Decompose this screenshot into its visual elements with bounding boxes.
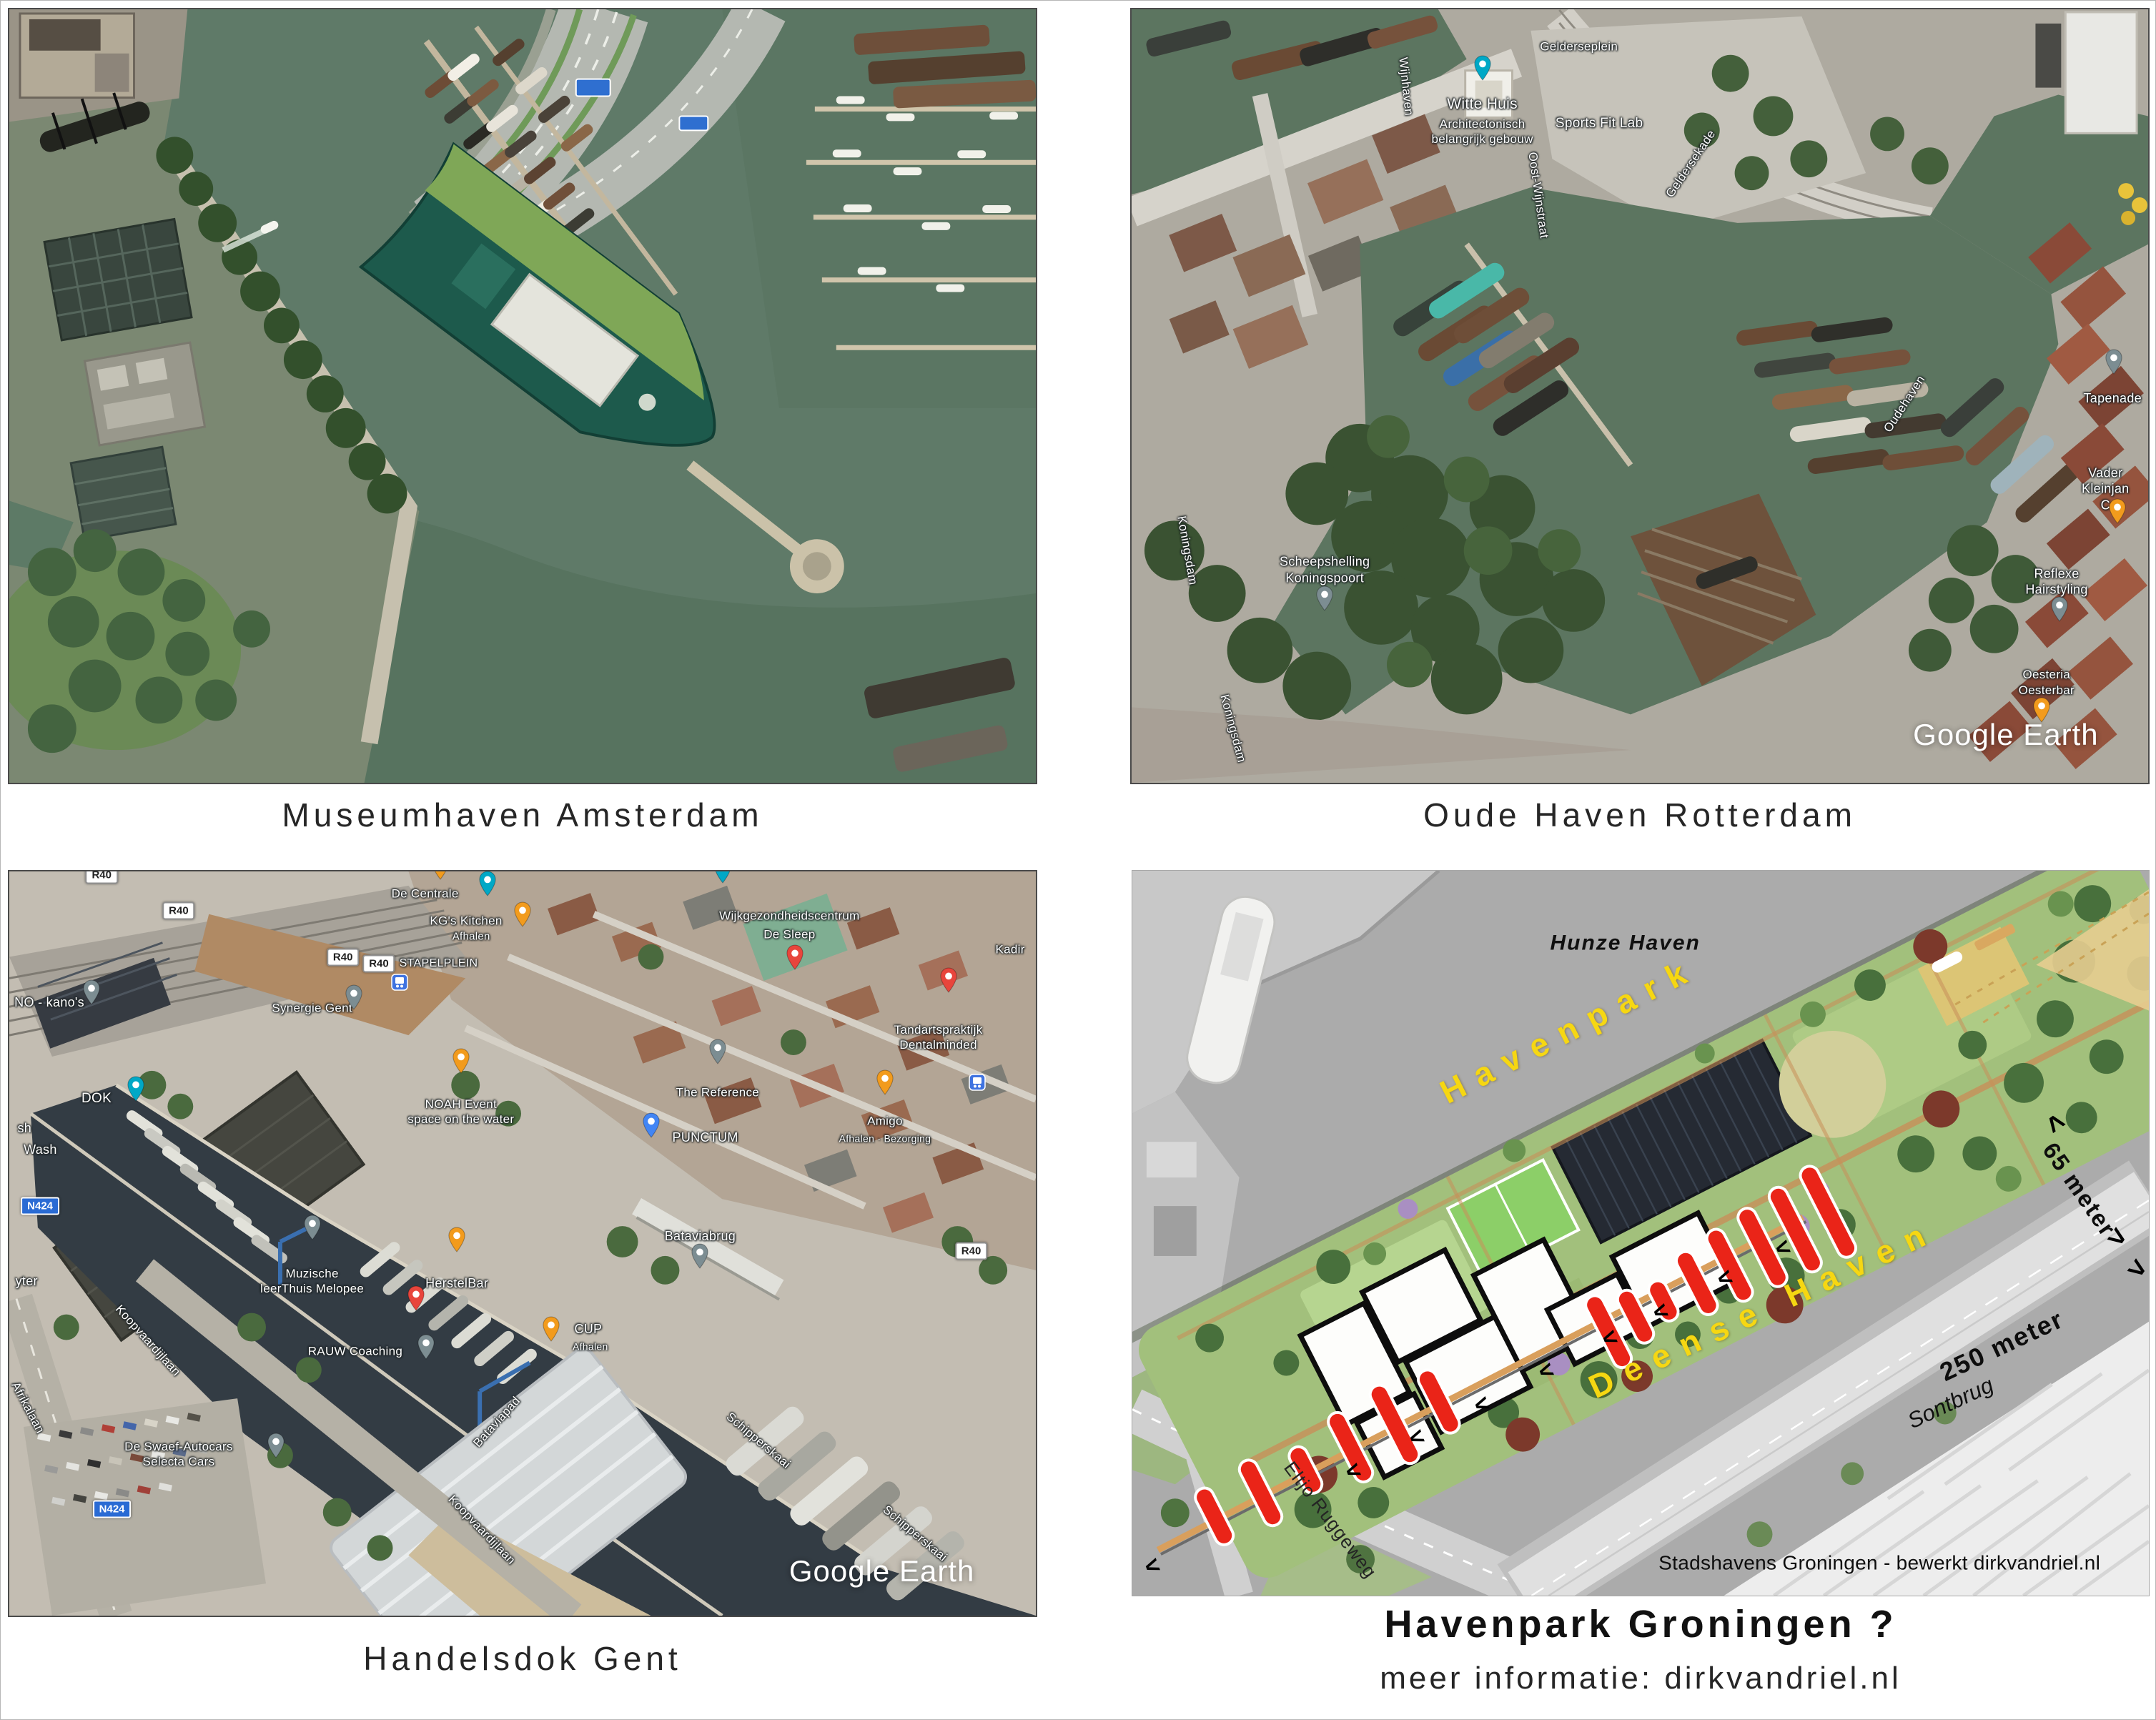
map-label: Kadir xyxy=(996,942,1025,957)
map-label: Deense Haven xyxy=(1582,1210,1943,1408)
caption-oude-haven-rotterdam: Oude Haven Rotterdam xyxy=(1130,796,2150,834)
google-earth-watermark: Google Earth xyxy=(789,1554,975,1588)
road-label: Schipperskaai xyxy=(723,1410,793,1472)
google-earth-watermark: Google Earth xyxy=(1913,718,2099,752)
dot-pin-icon xyxy=(2050,596,2069,622)
medical-pin-icon xyxy=(407,1285,425,1311)
map-label: < xyxy=(1534,1354,1558,1388)
camera-pin-icon xyxy=(1473,55,1492,81)
dot-pin-icon xyxy=(713,870,732,884)
map-label: De Centrale xyxy=(392,886,459,901)
map-label: KG's Kitchen xyxy=(430,913,502,928)
map-label: Wash xyxy=(24,1142,57,1158)
road-label: Geldersekade xyxy=(1663,127,1719,201)
map-label: Witte Huis xyxy=(1447,95,1518,114)
restaurant-pin-icon xyxy=(452,1048,470,1074)
map-label: Afhalen xyxy=(453,930,490,944)
map-label: HerstelBar xyxy=(425,1275,488,1291)
map-label: Eltjo Ruggeweg xyxy=(1279,1456,1382,1582)
map-label: Stadshavens Groningen - bewerkt dirkvand… xyxy=(1658,1551,2100,1576)
map-label: 65 meter xyxy=(2037,1137,2123,1242)
aerial-photo-museumhaven-amsterdam xyxy=(8,8,1037,784)
road-shield-N424: N424 xyxy=(93,1501,132,1518)
map-label: Architectonisch belangrijk gebouw xyxy=(1432,117,1533,147)
dot-pin-icon xyxy=(345,984,363,1010)
map-label: Afhalen · Bezorging xyxy=(839,1132,931,1145)
map-label: NOAH Event space on the water xyxy=(407,1097,514,1127)
map-label: < xyxy=(1341,1454,1365,1488)
map-label: Tapenade xyxy=(2083,390,2141,407)
map-label: Afhalen xyxy=(573,1340,608,1353)
bank-pin-icon xyxy=(127,1076,145,1102)
restaurant-pin-icon xyxy=(876,1069,894,1095)
road-shield-N424: N424 xyxy=(21,1197,59,1215)
book-pin-icon xyxy=(303,1215,322,1240)
road-label: Koningsdam xyxy=(1217,693,1250,764)
restaurant-pin-icon xyxy=(431,870,450,880)
map-label: < xyxy=(1405,1421,1428,1455)
map-label: < xyxy=(1713,1261,1736,1295)
map-label: CUP xyxy=(574,1321,602,1338)
rotterdam-overlay: GeldersepleinWitte HuisArchitectonisch b… xyxy=(1132,9,2148,783)
road-shield-R40: R40 xyxy=(955,1242,988,1260)
road-label: Oudehaven xyxy=(1880,372,1928,435)
map-label: NO - kano's xyxy=(14,994,84,1011)
groningen-overlay: Hunze HavenHavenparkDeense Haven65 meter… xyxy=(1132,871,2149,1596)
road-shield-R40: R40 xyxy=(327,948,360,966)
bridge-pin-icon xyxy=(691,1243,709,1269)
map-label: Scheepshelling Koningspoort xyxy=(1280,554,1370,586)
dot-pin-icon xyxy=(1315,585,1334,611)
coffee-pin-icon xyxy=(542,1316,560,1342)
road-label: Bataviapad xyxy=(470,1393,524,1450)
amsterdam-overlay xyxy=(9,9,1036,783)
medical-pin-icon xyxy=(786,944,804,970)
caption-museumhaven-amsterdam: Museumhaven Amsterdam xyxy=(8,796,1037,834)
road-label: Wijnhaven xyxy=(1395,56,1417,117)
map-label: < xyxy=(1598,1322,1622,1355)
road-shield-R40: R40 xyxy=(162,902,195,920)
road-shield-R40: R40 xyxy=(85,870,118,884)
harbour-collage-page: GeldersepleinWitte HuisArchitectonisch b… xyxy=(0,0,2156,1720)
map-label: < xyxy=(2036,1106,2075,1140)
map-label: < xyxy=(1141,1550,1164,1583)
dot-pin-icon xyxy=(82,979,101,1005)
map-label: The Reference xyxy=(676,1085,759,1100)
transit-pin-icon xyxy=(391,974,408,991)
transit-pin-icon xyxy=(969,1074,986,1091)
map-label: Bataviabrug xyxy=(665,1228,736,1245)
lock-pin-icon xyxy=(642,1112,661,1138)
map-label: RAUW Coaching xyxy=(308,1344,402,1359)
dot-pin-icon xyxy=(708,1039,727,1064)
map-label: Wijkgezondheidscentrum xyxy=(719,909,860,924)
map-label: yter xyxy=(16,1272,38,1289)
map-label: Amigo xyxy=(867,1113,903,1128)
map-label: 250 meter xyxy=(1934,1303,2069,1388)
road-label: Afrikalaan xyxy=(8,1379,48,1435)
plan-havenpark-groningen: Hunze HavenHavenparkDeense Haven65 meter… xyxy=(1132,870,2150,1596)
map-label: Gelderseplein xyxy=(1540,39,1618,54)
map-label: < xyxy=(1771,1232,1794,1265)
map-label: < xyxy=(1649,1295,1673,1328)
dot-pin-icon xyxy=(417,1334,435,1360)
caption-meer-informatie: meer informatie: dirkvandriel.nl xyxy=(1132,1661,2150,1696)
road-label: Oost-Wijnstraat xyxy=(1525,151,1552,239)
satellite-view-oude-haven-rotterdam: GeldersepleinWitte HuisArchitectonisch b… xyxy=(1130,8,2150,784)
road-shield-R40: R40 xyxy=(362,955,395,973)
coffee-pin-icon xyxy=(2108,498,2127,524)
dot-pin-icon xyxy=(267,1433,285,1458)
map-label: Havenpark xyxy=(1433,947,1705,1113)
map-label: > xyxy=(2120,1249,2150,1288)
caption-havenpark-groningen: Havenpark Groningen ? xyxy=(1132,1602,2150,1646)
caption-handelsdok-gent: Handelsdok Gent xyxy=(8,1639,1037,1678)
map-label: Synergie Gent xyxy=(272,1000,352,1015)
map-label: Sports Fit Lab xyxy=(1556,115,1643,132)
map-label: De Swaef-Autocars Selecta Cars xyxy=(124,1439,233,1470)
satellite-view-handelsdok-gent: De CentraleKG's KitchenAfhalenWijkgezond… xyxy=(8,870,1037,1617)
map-label: PUNCTUM xyxy=(673,1129,738,1145)
map-label: Muzische leerThuis Melopee xyxy=(260,1265,364,1296)
map-label: DOK xyxy=(81,1090,112,1107)
map-label: De Sleep xyxy=(763,927,815,942)
dot-pin-icon xyxy=(2105,349,2123,375)
cocktail-pin-icon xyxy=(447,1227,466,1252)
road-label: Koopvaardijlaan xyxy=(445,1492,518,1568)
map-label: sh xyxy=(17,1120,31,1137)
map-label: < xyxy=(1470,1388,1493,1422)
road-label: Koopvaardijlaan xyxy=(112,1302,184,1379)
map-label: Oesteria Oesterbar xyxy=(2019,667,2075,698)
medical-pin-icon xyxy=(939,967,958,993)
map-label: Tandartspraktijk Dentalminded xyxy=(894,1022,983,1053)
map-label: STAPELPLEIN xyxy=(400,957,478,971)
flag-pin-icon xyxy=(478,871,497,896)
road-label: Koningsdam xyxy=(1174,515,1201,587)
map-label: Reflexe Hairstyling xyxy=(2011,565,2102,598)
gent-overlay: De CentraleKG's KitchenAfhalenWijkgezond… xyxy=(9,871,1036,1616)
restaurant-pin-icon xyxy=(513,901,532,927)
